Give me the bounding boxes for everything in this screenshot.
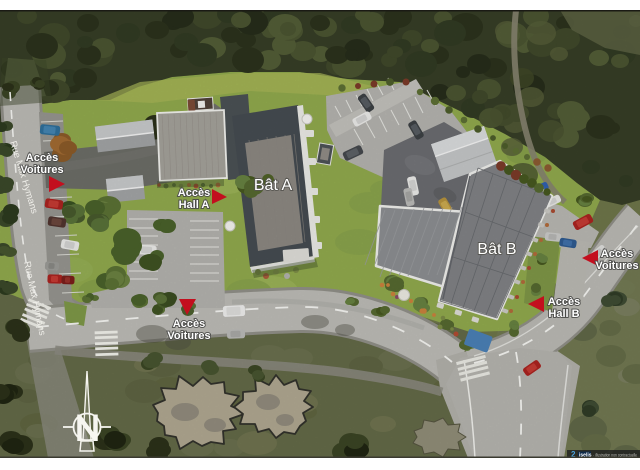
svg-text:Accès: Accès (178, 187, 210, 199)
svg-text:Bât B: Bât B (477, 241, 516, 258)
svg-text:Hall A: Hall A (179, 199, 210, 211)
svg-text:Accès: Accès (173, 318, 205, 330)
svg-text:Accès: Accès (601, 248, 633, 260)
svg-text:Accès: Accès (26, 152, 58, 164)
svg-text:Bât A: Bât A (254, 177, 293, 194)
svg-text:Accès: Accès (548, 296, 580, 308)
svg-text:Voitures: Voitures (167, 330, 210, 342)
svg-text:Hall B: Hall B (548, 308, 579, 320)
svg-text:Voitures: Voitures (20, 164, 63, 176)
svg-text:Voitures: Voitures (595, 260, 638, 272)
